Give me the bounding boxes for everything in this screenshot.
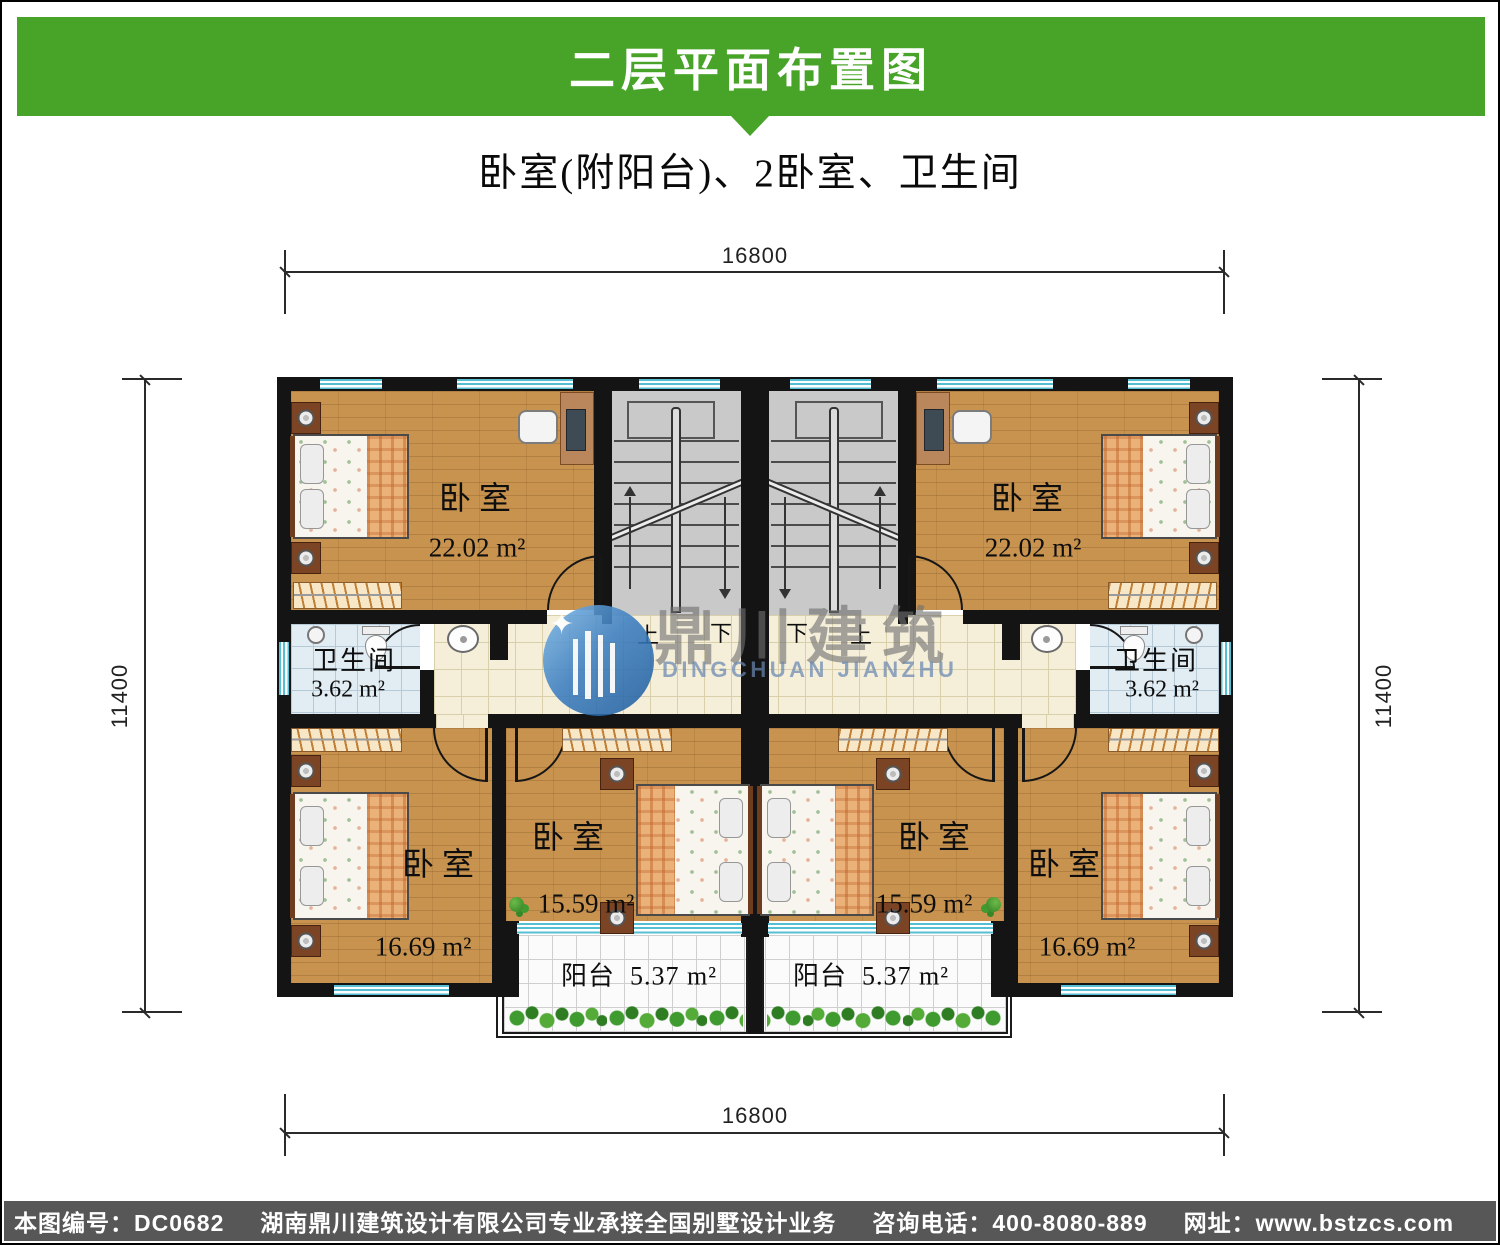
door-leaf (515, 728, 518, 782)
stair-arrow-head (624, 486, 636, 496)
window (790, 379, 871, 389)
bed (293, 792, 409, 920)
nightstand (291, 542, 321, 574)
dim-line-left (144, 379, 146, 1013)
page-title: 二层平面布置图 (569, 34, 933, 100)
company-name: 湖南鼎川建筑设计有限公司专业承接全国别墅设计业务 (260, 1204, 836, 1238)
door-leaf (908, 555, 911, 610)
room-label-balcony-r: 阳台 5.37 m² (793, 956, 949, 993)
room-label-balcony-l: 阳台 5.37 m² (561, 956, 717, 993)
bed-headboard (757, 786, 762, 914)
wall (602, 610, 612, 624)
nightstand (600, 758, 634, 790)
lamp-icon (1196, 410, 1213, 427)
lamp-icon (298, 763, 315, 780)
wardrobe (293, 582, 402, 609)
room-label-bedroom-tl: 卧室 (439, 473, 519, 519)
stair-direction-down-right: 下 (786, 616, 808, 648)
bed-blanket (638, 786, 675, 914)
room-area-bath-r: 3.62 m² (1125, 677, 1199, 704)
wall (948, 714, 1022, 728)
desk (916, 392, 950, 465)
lamp-icon (1196, 550, 1213, 567)
wall (562, 714, 755, 728)
balcony-name: 阳台 (561, 962, 615, 991)
footer-bar: 本图编号：DC0682 湖南鼎川建筑设计有限公司专业承接全国别墅设计业务 咨询电… (4, 1201, 1496, 1241)
window (1221, 642, 1231, 695)
dim-line-bottom (285, 1132, 1225, 1134)
stair-direction-up-right: 上 (850, 618, 872, 650)
room-label-bath-l: 卫生间 (312, 641, 396, 678)
door-leaf (599, 555, 602, 610)
nightstand (1189, 402, 1219, 434)
door-leaf (1022, 728, 1025, 782)
hallway-floor (1022, 714, 1074, 728)
stair-arrow-head (719, 589, 731, 599)
pillow (1186, 866, 1210, 906)
bed-blanket (835, 786, 872, 914)
room-area-bedroom-tl: 22.02 m² (429, 533, 526, 564)
bed-headboard (1215, 794, 1220, 918)
dim-ext-line (1223, 250, 1225, 314)
pillow (300, 866, 324, 906)
dim-value-left: 11400 (107, 664, 133, 729)
door-leaf (485, 728, 488, 782)
chair (952, 410, 992, 444)
room-label-bedroom-br: 卧室 (1028, 839, 1108, 885)
bed-headboard (290, 794, 295, 918)
dim-line-right (1358, 379, 1360, 1013)
lamp-icon (609, 766, 626, 783)
pillow (300, 489, 324, 529)
wall (755, 714, 948, 728)
hallway-floor (769, 615, 1076, 714)
lamp-icon (298, 410, 315, 427)
room-area-bedroom-brc: 15.59 m² (876, 889, 973, 920)
window (320, 379, 382, 389)
wall (277, 714, 436, 728)
balcony-name: 阳台 (793, 962, 847, 991)
plant-icon (986, 897, 1001, 912)
plant-icon (509, 897, 524, 912)
party-wall (755, 937, 762, 1034)
pillow (300, 444, 324, 484)
balcony-area: 5.37 m² (630, 962, 717, 991)
window (1061, 985, 1176, 995)
monitor (924, 409, 944, 451)
dim-value-right: 11400 (1371, 664, 1397, 729)
stair-treads (680, 440, 739, 585)
lamp-icon (298, 550, 315, 567)
stair-arrow (724, 497, 726, 589)
chair (518, 410, 558, 444)
pillow (1186, 489, 1210, 529)
pillow (1186, 444, 1210, 484)
bed-headboard (290, 436, 295, 537)
window (937, 379, 1053, 389)
wall-stub (1002, 615, 1020, 660)
hallway-floor (436, 714, 488, 728)
bed-blanket (1103, 794, 1143, 918)
bed (1101, 792, 1217, 920)
stair-treads (771, 440, 830, 585)
room-area-bedroom-blc: 15.59 m² (538, 889, 635, 920)
bed-headboard (748, 786, 753, 914)
wardrobe (1108, 728, 1219, 752)
nightstand (876, 758, 910, 790)
nightstand (1189, 542, 1219, 574)
wall (742, 921, 755, 935)
pillow (300, 806, 324, 846)
wall (1074, 714, 1233, 728)
bed (636, 784, 750, 916)
room-label-bath-r: 卫生间 (1114, 641, 1198, 678)
stair-arrow (629, 497, 631, 589)
balcony-plants (507, 1005, 743, 1031)
phone-number: 咨询电话：400-8080-889 (872, 1204, 1147, 1238)
plan-number: 本图编号：DC0682 (14, 1204, 224, 1238)
pillow (1186, 806, 1210, 846)
nightstand (1189, 755, 1219, 787)
wall-stub (490, 615, 508, 660)
stair-arrow-head (779, 589, 791, 599)
lamp-icon (298, 933, 315, 950)
wardrobe (291, 728, 402, 752)
window (457, 379, 573, 389)
room-label-bedroom-bl: 卧室 (402, 839, 482, 885)
room-area-bedroom-tr: 22.02 m² (985, 533, 1082, 564)
balcony-side-wall (991, 921, 1008, 997)
dim-ext-line (1223, 1094, 1225, 1156)
pillow (767, 862, 791, 902)
stair-arrow-head (874, 486, 886, 496)
dim-value-top: 16800 (722, 243, 788, 269)
bed-blanket (1103, 436, 1143, 537)
monitor (566, 409, 586, 451)
room-label-bedroom-tr: 卧室 (991, 473, 1071, 519)
wall (488, 714, 562, 728)
door-leaf (992, 728, 995, 782)
bed (293, 434, 409, 539)
party-wall (748, 937, 755, 1034)
dim-ext-line (122, 378, 182, 380)
stair-landing (795, 401, 883, 439)
stair-arrow (784, 497, 786, 589)
floor-plan-page: 二层平面布置图 卧室(附阳台)、2卧室、卫生间 16800 16800 1140… (0, 0, 1500, 1245)
room-label-bedroom-brc: 卧室 (898, 812, 978, 858)
dim-ext-line (1322, 378, 1382, 380)
window (639, 379, 720, 389)
wardrobe (562, 728, 672, 752)
bed (760, 784, 874, 916)
dim-value-bottom: 16800 (722, 1103, 788, 1129)
nightstand (291, 925, 321, 957)
balcony-plants (767, 1005, 1003, 1031)
window (334, 985, 449, 995)
lamp-icon (1196, 933, 1213, 950)
room-area-bedroom-br: 16.69 m² (1039, 932, 1136, 963)
lamp-icon (1196, 763, 1213, 780)
dim-line-top (285, 271, 1225, 273)
wall (755, 921, 768, 935)
toilet (362, 626, 390, 635)
toilet (1120, 626, 1148, 635)
website: 网址：www.bstzcs.com (1184, 1204, 1454, 1238)
hallway-floor (434, 615, 741, 714)
room-label-bedroom-blc: 卧室 (532, 812, 612, 858)
window (279, 642, 289, 695)
bed (1101, 434, 1217, 539)
dim-ext-line (284, 1094, 286, 1156)
wall (898, 610, 908, 624)
desk (560, 392, 594, 465)
dim-ext-line (1322, 1011, 1382, 1013)
room-area-bedroom-bl: 16.69 m² (375, 932, 472, 963)
stair-direction-up-left: 上 (637, 618, 659, 650)
pillow (719, 798, 743, 838)
wall (1076, 670, 1090, 714)
pillow (719, 862, 743, 902)
room-area-bath-l: 3.62 m² (311, 677, 385, 704)
bed-headboard (1215, 436, 1220, 537)
nightstand (1189, 925, 1219, 957)
dim-ext-line (284, 250, 286, 314)
nightstand (291, 755, 321, 787)
wall (420, 670, 434, 714)
bed-blanket (367, 436, 407, 537)
window (1128, 379, 1190, 389)
sink (447, 625, 479, 653)
page-subtitle: 卧室(附阳台)、2卧室、卫生间 (2, 142, 1498, 198)
nightstand (291, 402, 321, 434)
banner-pointer (731, 116, 769, 136)
pillow (767, 798, 791, 838)
title-banner: 二层平面布置图 (17, 17, 1485, 116)
wardrobe (838, 728, 948, 752)
dim-ext-line (122, 1011, 182, 1013)
stair-arrow (879, 497, 881, 589)
sink (1031, 625, 1063, 653)
lamp-icon (885, 766, 902, 783)
balcony-area: 5.37 m² (862, 962, 949, 991)
wardrobe (1108, 582, 1217, 609)
stair-direction-down-left: 下 (710, 616, 732, 648)
bed-blanket (367, 794, 407, 918)
